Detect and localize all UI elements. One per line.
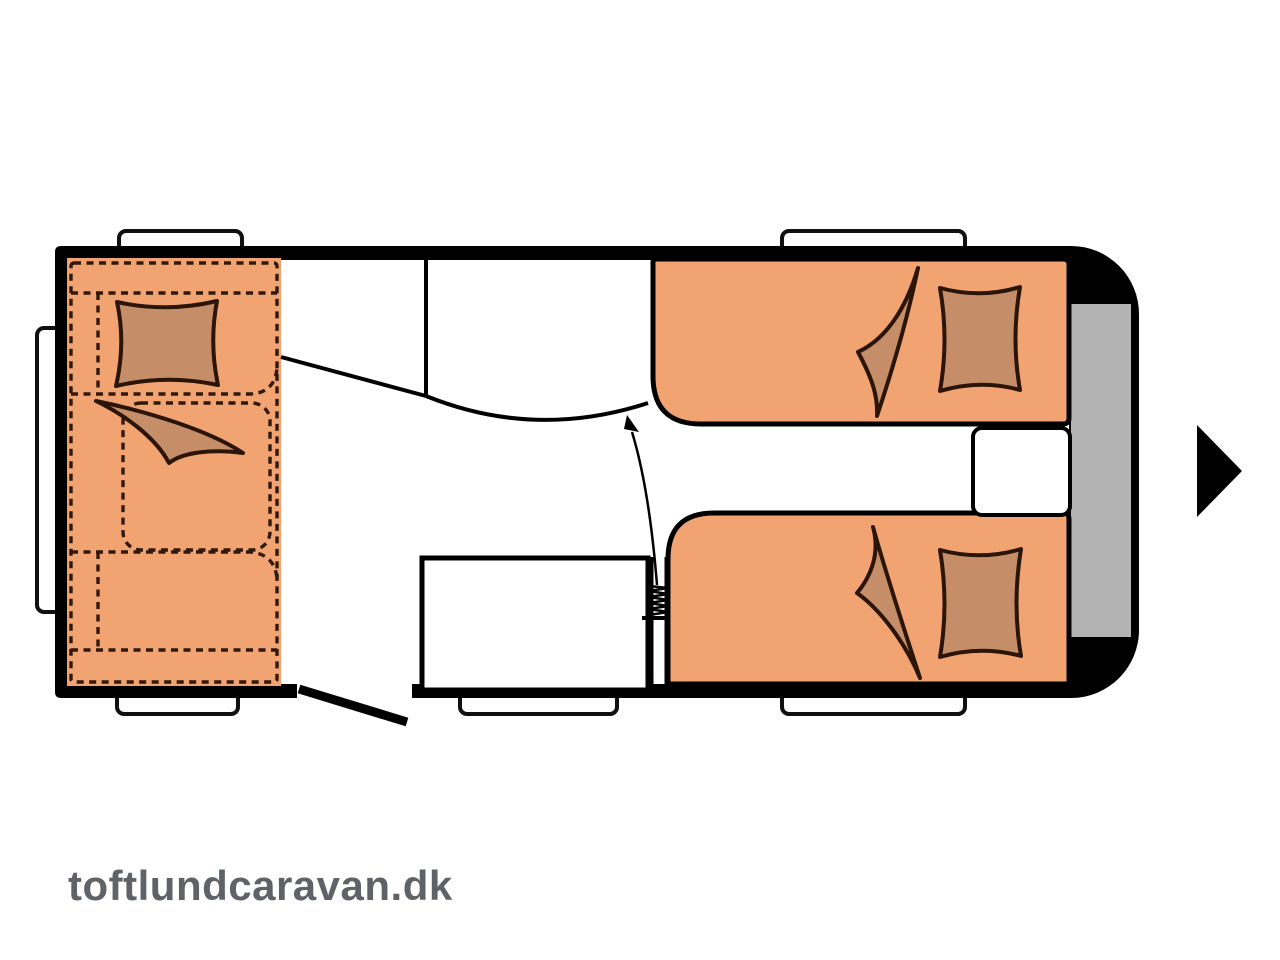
bedside-cabinet xyxy=(973,428,1070,515)
front-storage xyxy=(1070,303,1132,638)
single-bed-top xyxy=(653,259,1069,424)
drawbar-arrow xyxy=(1197,425,1242,517)
bed-bottom-pillow xyxy=(940,549,1021,657)
rear-lounge xyxy=(67,258,281,686)
bed-top-pillow xyxy=(940,287,1020,391)
kitchen-block xyxy=(422,558,648,690)
caravan-floorplan: toftlundcaravan.dk xyxy=(0,0,1280,960)
entrance-door xyxy=(297,684,412,722)
watermark-text: toftlundcaravan.dk xyxy=(68,862,453,909)
floorplan-svg: toftlundcaravan.dk xyxy=(0,0,1280,960)
single-bed-bottom xyxy=(668,513,1069,684)
lounge-pillow xyxy=(116,301,218,386)
